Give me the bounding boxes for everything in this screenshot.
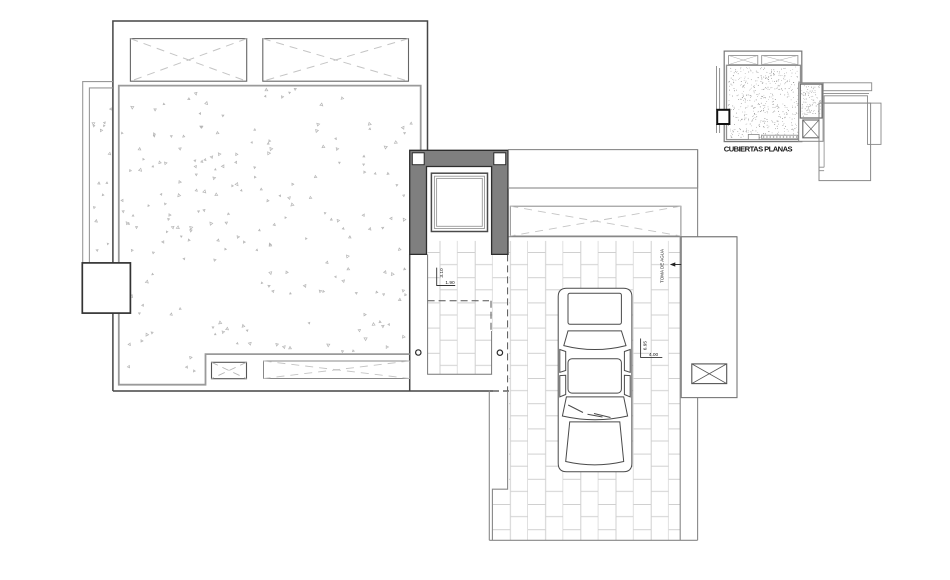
svg-text:6.95: 6.95 xyxy=(643,341,649,351)
svg-text:1.90: 1.90 xyxy=(445,280,455,286)
svg-text:CUBIERTAS PLANAS: CUBIERTAS PLANAS xyxy=(724,145,793,154)
svg-text:3.10: 3.10 xyxy=(439,268,445,278)
svg-text:4.00: 4.00 xyxy=(649,352,659,358)
svg-text:TOMA DE AGUA: TOMA DE AGUA xyxy=(660,249,665,283)
